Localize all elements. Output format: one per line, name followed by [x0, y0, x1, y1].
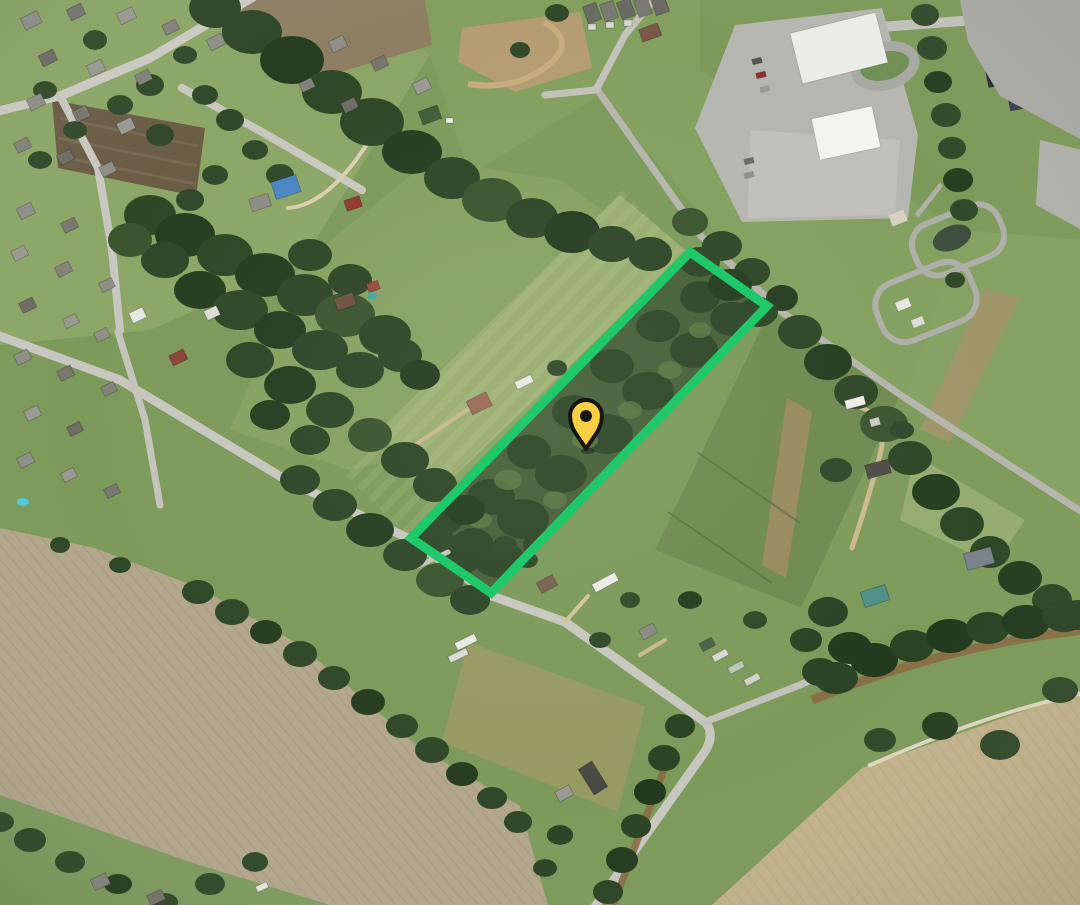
- satellite-map[interactable]: [0, 0, 1080, 905]
- vignette: [0, 0, 1080, 905]
- terrain: [0, 0, 1080, 905]
- map-viewport[interactable]: [0, 0, 1080, 905]
- pin-hole: [580, 410, 592, 422]
